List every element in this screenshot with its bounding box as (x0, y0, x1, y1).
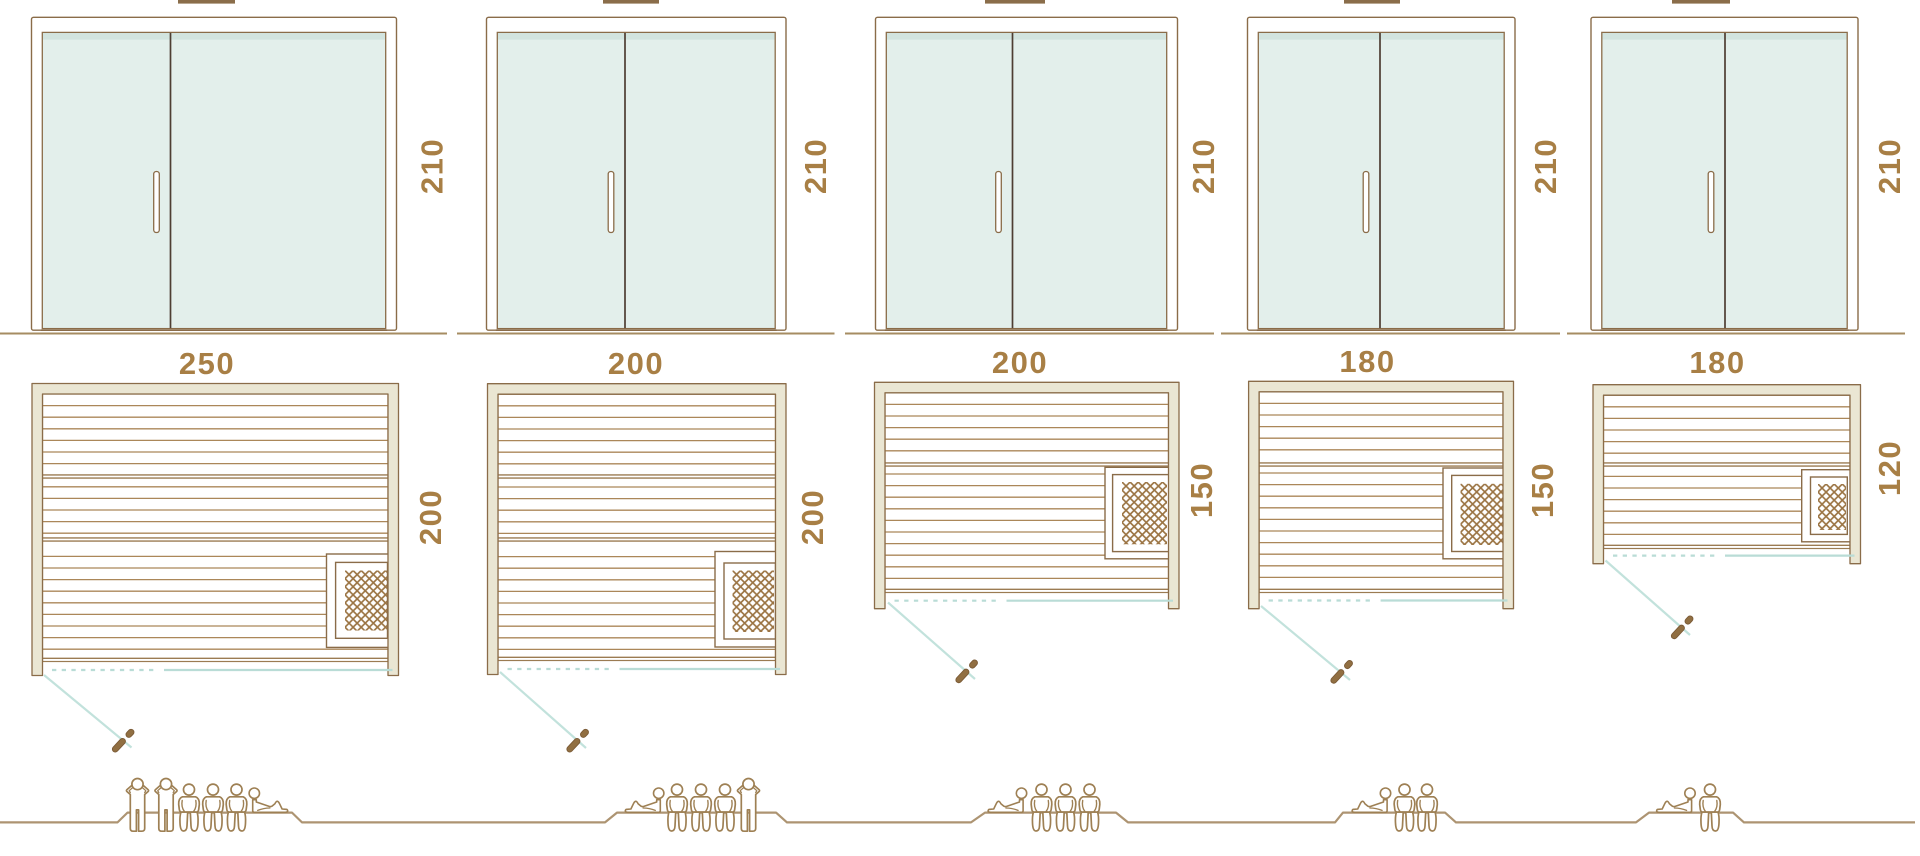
svg-text:200: 200 (992, 345, 1048, 380)
svg-text:210: 210 (1872, 138, 1907, 194)
svg-text:210: 210 (1186, 138, 1221, 194)
svg-text:200: 200 (413, 489, 448, 545)
svg-text:200: 200 (608, 346, 664, 381)
svg-text:200: 200 (795, 489, 830, 545)
svg-text:150: 150 (1184, 462, 1219, 518)
svg-text:250: 250 (179, 346, 235, 381)
svg-text:150: 150 (1525, 462, 1560, 518)
svg-text:210: 210 (415, 138, 450, 194)
svg-text:210: 210 (798, 138, 833, 194)
svg-text:180: 180 (1689, 345, 1745, 380)
svg-text:120: 120 (1872, 440, 1907, 496)
svg-text:210: 210 (1528, 138, 1563, 194)
svg-text:180: 180 (1339, 344, 1395, 379)
